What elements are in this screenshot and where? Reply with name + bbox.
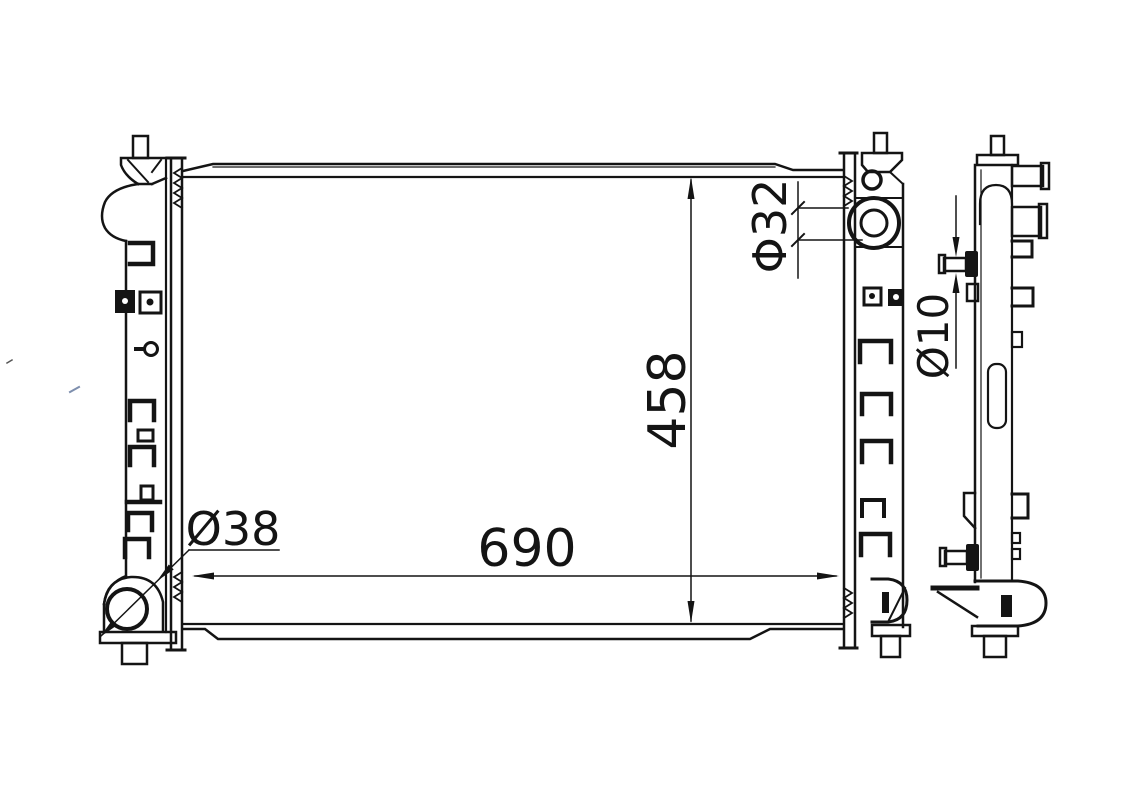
- clip-bracket: [130, 401, 154, 420]
- foot-peg: [881, 636, 900, 657]
- clip-bracket: [125, 539, 149, 557]
- side-tab: [967, 284, 978, 301]
- dimension-core-width: 690: [192, 519, 839, 580]
- tank-bulge: [102, 184, 138, 241]
- arrowhead-up: [953, 273, 960, 293]
- side-view: [933, 136, 1049, 657]
- clip-bracket: [861, 534, 890, 555]
- clip-bracket: [130, 447, 154, 465]
- side-bracket-left: [964, 493, 975, 528]
- lower-brace-diagonal: [938, 592, 977, 617]
- tank-dome-profile: [980, 185, 1012, 224]
- hose-stub-upper-cap: [1041, 163, 1049, 189]
- drain-hole: [145, 343, 158, 356]
- side-tab: [1012, 332, 1022, 347]
- clip-bracket: [862, 500, 884, 516]
- left-side-plate: [167, 158, 185, 650]
- scan-artifacts: [7, 360, 79, 392]
- mount-clip-hole: [122, 298, 128, 304]
- mount-clip-pin: [869, 293, 875, 299]
- arrowhead-up: [688, 177, 695, 199]
- clip-bracket: [862, 441, 891, 462]
- dimension-label-458: 458: [638, 350, 698, 449]
- filler-neck-inner-line: [128, 160, 161, 182]
- mount-pin-upper-cap: [939, 255, 945, 273]
- mount-tab-brace: [890, 172, 903, 184]
- stray-mark: [70, 387, 79, 392]
- right-tank: [849, 133, 910, 657]
- arrowhead-down: [953, 237, 960, 257]
- stray-mark: [7, 360, 12, 363]
- clip-bracket: [862, 394, 891, 414]
- mount-pin-lower-cap: [940, 548, 946, 566]
- inlet-pipe-inner: [861, 210, 887, 236]
- side-bracket: [1012, 494, 1028, 518]
- clip-bracket: [860, 341, 891, 362]
- hose-stub-upper: [1012, 166, 1043, 186]
- mount-tab: [862, 153, 902, 172]
- arrowhead-left: [192, 573, 214, 580]
- clip-tab: [138, 430, 153, 441]
- dimension-label-phi10: Ø10: [909, 293, 958, 380]
- mount-pin-lower: [945, 551, 967, 564]
- clip-bracket: [130, 243, 153, 264]
- mount-tab-peg: [874, 133, 887, 153]
- lower-housing-slot: [1001, 595, 1012, 617]
- hose-stub-lower: [1012, 207, 1041, 236]
- drawing-canvas: 458 690 Φ32 Ø10 Ø38: [0, 0, 1122, 797]
- dimension-label-690: 690: [477, 519, 576, 579]
- dimension-pin-diameter: Ø10: [909, 196, 960, 379]
- bottom-tank-outer-edge: [183, 629, 843, 639]
- side-bracket: [1012, 241, 1032, 257]
- drain-slot: [882, 592, 889, 613]
- filler-cap-peg: [133, 136, 148, 158]
- side-tab: [1012, 549, 1020, 559]
- clip-bracket: [128, 513, 152, 530]
- dimension-label-phi32: Φ32: [743, 179, 797, 274]
- side-bracket: [1012, 288, 1033, 306]
- left-tank: [100, 136, 176, 664]
- core-channel-slot: [988, 364, 1006, 428]
- radiator-technical-drawing: 458 690 Φ32 Ø10 Ø38: [0, 0, 1122, 797]
- leader-arrowhead-end: [100, 621, 117, 638]
- foot-peg: [122, 643, 147, 664]
- hose-stub-lower-cap: [1039, 204, 1047, 238]
- arrowhead-down: [688, 601, 695, 623]
- dimension-core-height: 458: [638, 177, 698, 623]
- mount-clip-hole: [893, 294, 899, 300]
- arrowhead-right: [817, 573, 839, 580]
- mount-clip-pin: [147, 299, 154, 306]
- clip-tab: [141, 486, 153, 500]
- dimension-label-phi38: Ø38: [186, 502, 281, 556]
- vent-hole: [863, 171, 881, 189]
- foot-peg: [984, 636, 1006, 657]
- side-tab: [1012, 533, 1020, 543]
- foot-plate: [100, 632, 176, 643]
- mount-pin-upper: [944, 258, 966, 271]
- foot-plate: [872, 625, 910, 636]
- top-cap: [977, 155, 1018, 165]
- top-peg: [991, 136, 1004, 155]
